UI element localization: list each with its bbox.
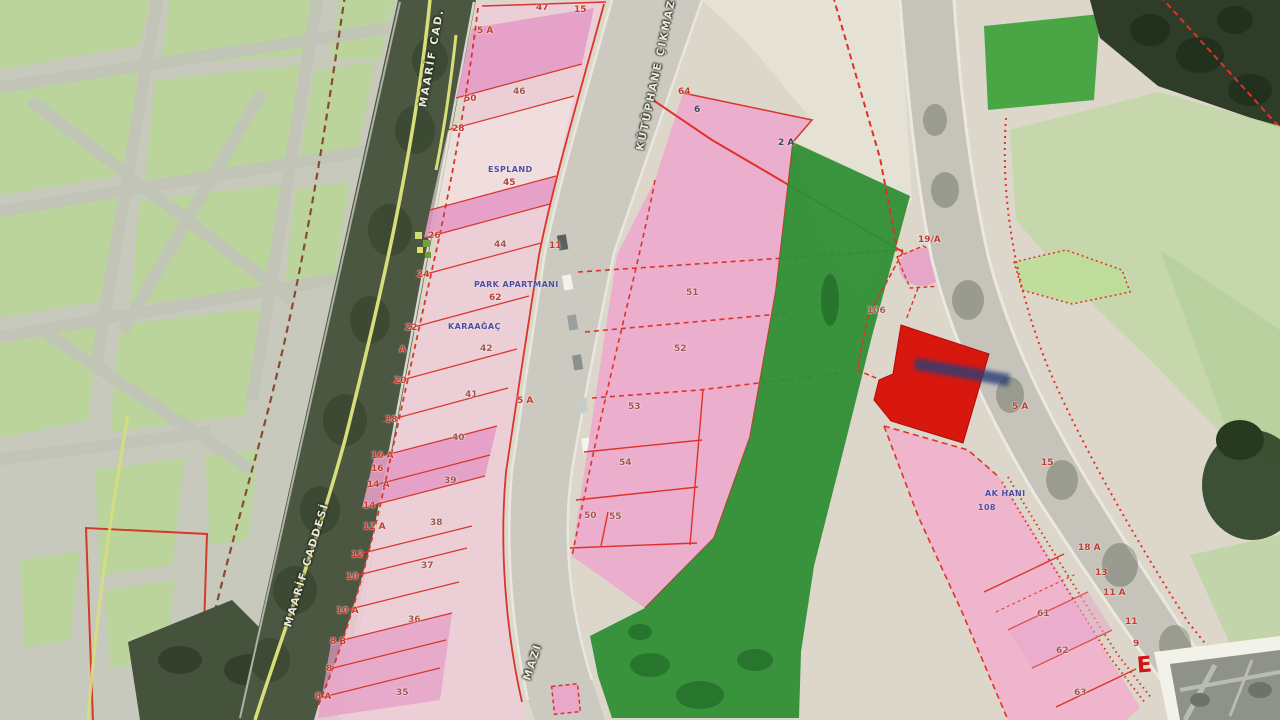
street-number: A — [399, 346, 406, 355]
parcel-number: 44 — [494, 241, 507, 250]
street-number: 14 A — [367, 481, 390, 490]
street-number: 20 — [394, 377, 407, 386]
parcel-number: 106 — [867, 307, 886, 316]
street-number: 15 — [574, 6, 587, 15]
street-number: 22 — [405, 324, 418, 333]
street-number: 47 — [536, 4, 549, 13]
parcel-number: 63 — [1074, 689, 1087, 698]
parcel-number: 2 A — [778, 139, 794, 148]
sports-field — [984, 14, 1100, 110]
building-label-ak-hani: AK HANI — [985, 490, 1026, 498]
parcel-number: 39 — [444, 477, 457, 486]
street-number: 18 A — [1078, 544, 1101, 553]
building-number: 42 — [480, 345, 493, 354]
street-number: 28 — [452, 125, 465, 134]
parcel-number: 35 — [396, 689, 409, 698]
street-number: 24 — [417, 271, 430, 280]
street-number: 26 — [428, 232, 441, 241]
building-label-espland: ESPLAND — [488, 166, 533, 174]
parcel-number: 62 — [1056, 647, 1069, 656]
parcel-number: 50 — [584, 512, 597, 521]
street-number: 18 — [385, 416, 398, 425]
small-pink-parcel — [552, 684, 581, 715]
building-number: 45 — [503, 179, 516, 188]
parcel-number: 52 — [674, 345, 687, 354]
parcel-number: 37 — [421, 562, 434, 571]
parcel-number: 5 A — [517, 397, 533, 406]
street-number: 8 — [326, 665, 332, 674]
parcel-number: 38 — [430, 519, 443, 528]
street-number: 10 — [346, 573, 359, 582]
parcel-number: 11 — [549, 242, 562, 251]
building-label-park-apartmani: PARK APARTMANI — [474, 281, 559, 289]
street-number: 50 — [464, 95, 477, 104]
street-number: 19/A — [918, 236, 941, 245]
street-number: 15 — [1041, 459, 1054, 468]
street-number: 12 A — [363, 523, 386, 532]
building-number: 108 — [978, 504, 996, 512]
map-canvas[interactable]: MAARİF CAD. MAARİF CADDESİ KÜTÜPHANE ÇIK… — [0, 0, 1280, 720]
legend-letter-e: E — [1136, 654, 1153, 677]
street-number: 14 — [363, 502, 376, 511]
parcel-number: 36 — [408, 616, 421, 625]
parcel-number: 54 — [619, 459, 632, 468]
map-graphics — [0, 0, 1280, 720]
street-number: 8 B — [330, 638, 346, 647]
parcel-number: 41 — [465, 391, 478, 400]
street-number: 8 A — [315, 693, 331, 702]
parcel-number: 51 — [686, 289, 699, 298]
parcel-number: 61 — [1037, 610, 1050, 619]
street-number: 13 — [1095, 569, 1108, 578]
street-number: 10 A — [336, 607, 359, 616]
street-number: 12 — [351, 551, 364, 560]
street-number: 5 A — [477, 27, 493, 36]
street-number: 16 — [371, 465, 384, 474]
parcel-number: 6 — [694, 106, 700, 115]
building-number: 62 — [489, 294, 502, 303]
parcel-number: 40 — [452, 434, 465, 443]
parcel-number: 55 — [609, 513, 622, 522]
parcel-number: 46 — [513, 88, 526, 97]
street-number: 11 A — [1103, 589, 1126, 598]
street-number: 9 — [1133, 640, 1139, 649]
street-number: 11 — [1125, 618, 1138, 627]
street-number: 16 A — [371, 452, 394, 461]
street-number: 5 A — [1012, 403, 1028, 412]
parcel-number: 53 — [628, 403, 641, 412]
building-label-karaagac: KARAAĞAÇ — [448, 323, 501, 331]
parcel-number: 64 — [678, 88, 691, 97]
